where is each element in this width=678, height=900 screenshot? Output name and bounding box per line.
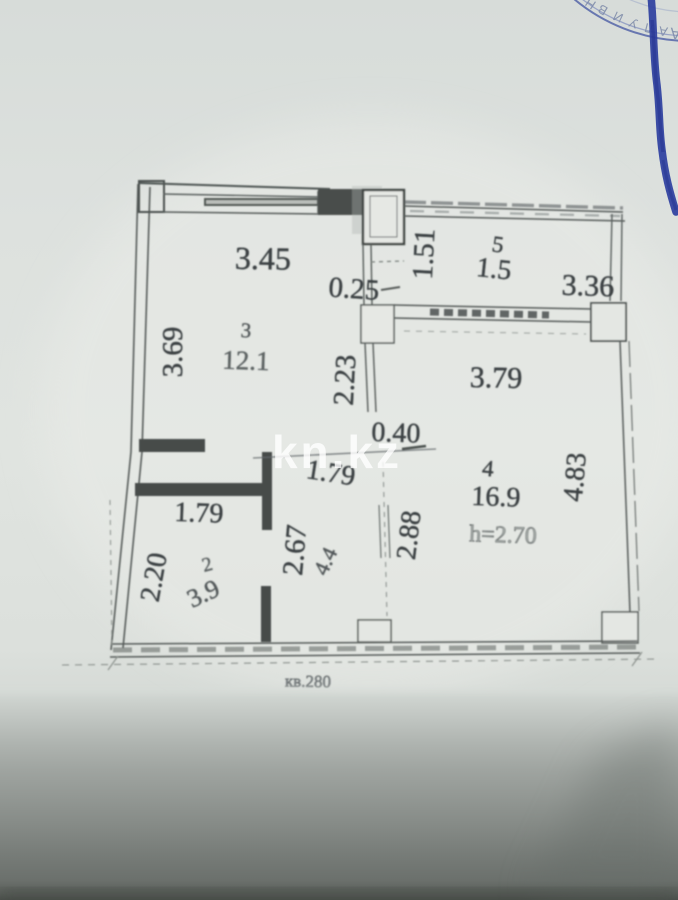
svg-text:16.9: 16.9: [471, 481, 521, 514]
svg-text:1.51: 1.51: [407, 228, 442, 280]
svg-text:4.83: 4.83: [558, 451, 593, 503]
svg-text:3.69: 3.69: [157, 327, 189, 378]
svg-text:2.23: 2.23: [328, 354, 363, 406]
svg-text:kn.kz: kn.kz: [272, 426, 402, 478]
svg-text:0.25: 0.25: [327, 271, 380, 306]
svg-text:3.79: 3.79: [469, 361, 522, 395]
svg-text:3: 3: [240, 318, 252, 343]
svg-text:12.1: 12.1: [222, 345, 270, 377]
svg-text:3.45: 3.45: [235, 240, 292, 277]
svg-text:1.79: 1.79: [174, 497, 224, 530]
svg-text:1.5: 1.5: [475, 252, 513, 286]
svg-text:h=2.70: h=2.70: [469, 521, 537, 549]
svg-text:3.36: 3.36: [561, 269, 615, 304]
svg-text:2.88: 2.88: [391, 509, 428, 561]
